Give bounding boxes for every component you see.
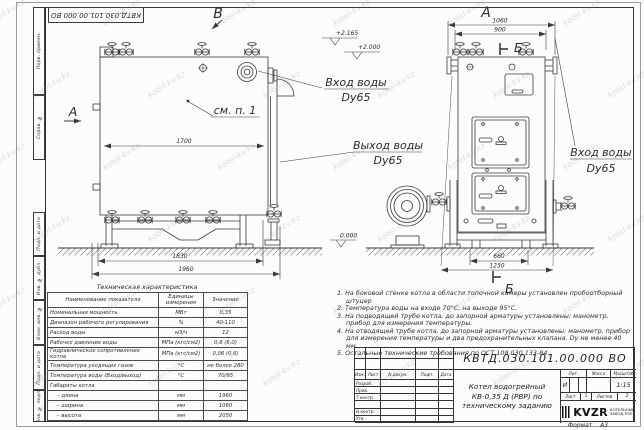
revision-cell xyxy=(381,359,416,370)
spec-value: 0,06 (0,6) xyxy=(204,348,248,361)
spec-value: 40-110 xyxy=(204,318,248,328)
inlet-right-dy: Dy65 xyxy=(587,162,616,175)
boiler-side-view xyxy=(58,43,322,256)
revision-cell xyxy=(366,348,381,359)
spec-name: Диапазон рабочего регулирования xyxy=(48,318,159,328)
spec-unit: % xyxy=(159,318,204,328)
spec-name: Температура уходящих газов xyxy=(48,361,159,371)
dim-660: 660 xyxy=(493,253,505,260)
sig-cell xyxy=(439,416,454,423)
upper-furnace-door xyxy=(472,117,529,168)
title-block-left: Изм. Лист N докум. Подп. Дата Разраб. Пр… xyxy=(355,348,454,423)
scale-value: 1:15 xyxy=(611,378,636,393)
inlet-right-label: Вход воды xyxy=(570,146,632,159)
lit-cell xyxy=(570,378,579,393)
sig-cell xyxy=(439,380,454,387)
note-item: 1. На боковой стенке котла в области топ… xyxy=(337,290,634,305)
title-block-right: Лит. Масса Масштаб И 1:15 Лист 1 Листов … xyxy=(561,370,636,423)
sheets-label: Листов xyxy=(592,393,618,401)
dim-900: 900 xyxy=(494,27,506,34)
spec-unit: МПа (кгс/см2) xyxy=(159,338,204,348)
spec-value: 0,35 xyxy=(204,308,248,318)
spec-table-caption: Техническая характеристика xyxy=(47,283,247,291)
spec-row: Температура уходящих газов°Сне более 280 xyxy=(48,361,248,371)
view-a-label: А xyxy=(480,5,491,21)
spec-row: – высотамм2050 xyxy=(48,411,248,421)
row-prov: Пров. xyxy=(355,387,381,394)
spec-unit: мм xyxy=(159,391,204,401)
title-block: Изм. Лист N докум. Подп. Дата Разраб. Пр… xyxy=(354,347,635,422)
col-doc: N докум. xyxy=(381,370,416,380)
dim-1960: 1960 xyxy=(178,266,193,273)
spec-col-units: Единицы измерения xyxy=(159,293,204,308)
inlet-left-label: Вход воды xyxy=(325,76,387,89)
spec-unit: МВт xyxy=(159,308,204,318)
spec-value: 70/95 xyxy=(204,371,248,381)
spec-unit: °С xyxy=(159,371,204,381)
sig-cell xyxy=(381,401,416,408)
revision-cell xyxy=(355,348,366,359)
row-nkontr: Н.контр. xyxy=(355,409,381,416)
outlet-label: Выход воды xyxy=(353,139,423,152)
spec-unit: мм xyxy=(159,401,204,411)
sig-cell xyxy=(439,394,454,401)
spec-row: – ширинамм1060 xyxy=(48,401,248,411)
elevation-2000: +2.000 xyxy=(358,44,380,51)
row-utv: Утв. xyxy=(355,416,381,423)
lit-header: Лит. xyxy=(561,370,587,378)
spec-unit: мм xyxy=(159,411,204,421)
format-label: Формат xyxy=(568,422,592,429)
drawing-sheet: Перв. примен. Справ. № Подп. и дата Инв.… xyxy=(0,0,644,430)
revision-cell xyxy=(381,348,416,359)
spec-row: Температура воды (Вход/выход)°С70/95 xyxy=(48,371,248,381)
sig-cell xyxy=(416,409,439,416)
revision-cell xyxy=(355,359,366,370)
note-item: 3. На подводящей трубе котла, до запорно… xyxy=(337,313,634,328)
sheet-number: 1 xyxy=(581,393,592,401)
spec-row: Рабочее давление водыМПа (кгс/см2)0,6 (6… xyxy=(48,338,248,348)
col-list: Лист xyxy=(366,370,381,380)
mass-header: Масса xyxy=(587,370,611,378)
top-valve xyxy=(245,43,259,56)
logo-bars-icon xyxy=(562,406,571,418)
top-valve xyxy=(105,43,119,56)
sheet-label: Лист xyxy=(561,393,581,401)
dim-1830: 1830 xyxy=(172,253,187,260)
elevation-2165: +2.165 xyxy=(336,30,358,37)
mass-value xyxy=(587,378,611,393)
sig-cell xyxy=(439,401,454,408)
lower-furnace-door xyxy=(472,173,529,214)
sig-cell xyxy=(381,409,416,416)
sig-cell xyxy=(439,409,454,416)
spec-name: Расход воды xyxy=(48,328,159,338)
sig-cell xyxy=(439,387,454,394)
spec-row: Гидравлическое сопротивление котлаМПа (к… xyxy=(48,348,248,361)
revision-cell xyxy=(416,359,439,370)
spec-name: Рабочее давление воды xyxy=(48,338,159,348)
inlet-left-dy: Dy65 xyxy=(342,91,371,104)
spec-name: – длина xyxy=(48,391,159,401)
spec-value: не более 280 xyxy=(204,361,248,371)
sig-cell xyxy=(381,387,416,394)
spec-value: 0,6 (6,0) xyxy=(204,338,248,348)
row-blank xyxy=(355,401,381,408)
section-a-marker: А xyxy=(68,104,78,119)
logo-text: KVZR xyxy=(573,406,608,419)
product-title: Котел водогрейный КВ-0,35 Д (РВР) по тех… xyxy=(454,370,561,423)
spec-name: – высота xyxy=(48,411,159,421)
spec-name: Гидравлическое сопротивление котла xyxy=(48,348,159,361)
spec-col-value: Значение xyxy=(204,293,248,308)
outlet-dy: Dy65 xyxy=(374,154,403,167)
col-izm: Изм. xyxy=(355,370,366,380)
dim-1060: 1060 xyxy=(492,18,507,25)
section-b-marker-top: Б xyxy=(514,40,523,55)
row-tkontr: Т.контр. xyxy=(355,394,381,401)
top-valve xyxy=(469,43,483,56)
spec-row: Расход водым3/ч12 xyxy=(48,328,248,338)
spec-value: 12 xyxy=(204,328,248,338)
sig-cell xyxy=(416,380,439,387)
view-b-label: В xyxy=(213,6,223,22)
lit-cell xyxy=(579,378,587,393)
side-view-dimensions xyxy=(64,20,632,279)
logo-subtext-line2: ЗАВОД РЭП xyxy=(610,411,633,416)
manufacturer-logo: KVZR КОТЕЛЬНЫЙ ЗАВОД РЭП xyxy=(561,401,636,423)
format-value: А3 xyxy=(600,422,608,429)
dim-1230: 1230 xyxy=(489,263,504,270)
sig-cell xyxy=(416,394,439,401)
row-razrab: Разраб. xyxy=(355,380,381,387)
spec-col-name: Наименование показателя xyxy=(48,293,159,308)
inlet-valve xyxy=(561,197,575,210)
spec-name: Габариты котла xyxy=(48,381,159,391)
sig-cell xyxy=(416,416,439,423)
revision-cell xyxy=(366,359,381,370)
spec-value xyxy=(204,381,248,391)
sig-cell xyxy=(416,401,439,408)
top-valve xyxy=(119,43,133,56)
spec-unit: МПа (кгс/см2) xyxy=(159,348,204,361)
spec-table: Наименование показателя Единицы измерени… xyxy=(47,292,248,421)
fan-blower xyxy=(387,186,450,248)
lit-value: И xyxy=(561,378,570,393)
format-note: Формат А3 xyxy=(540,422,636,429)
spec-row: Габариты котла xyxy=(48,381,248,391)
see-note-callout: см. п. 1 xyxy=(214,104,257,117)
logo-subtext: КОТЕЛЬНЫЙ ЗАВОД РЭП xyxy=(610,408,635,417)
dim-1700: 1700 xyxy=(176,138,191,145)
spec-header-row: Наименование показателя Единицы измерени… xyxy=(48,293,248,308)
revision-cell xyxy=(439,359,454,370)
drain-valve xyxy=(267,205,281,218)
sig-cell xyxy=(381,416,416,423)
sheets-total: 2 xyxy=(618,393,636,401)
sig-cell xyxy=(416,387,439,394)
revision-cell xyxy=(439,348,454,359)
spec-row: – длинамм1960 xyxy=(48,391,248,401)
spec-value: 2050 xyxy=(204,411,248,421)
spec-unit xyxy=(159,381,204,391)
spec-value: 1060 xyxy=(204,401,248,411)
col-sign: Подп. xyxy=(416,370,439,380)
elevation-zero: 0.000 xyxy=(340,233,357,240)
fan-valve xyxy=(432,193,446,206)
sig-cell xyxy=(381,380,416,387)
spec-unit: м3/ч xyxy=(159,328,204,338)
scale-header: Масштаб xyxy=(611,370,636,378)
revision-cell xyxy=(416,348,439,359)
sig-cell xyxy=(381,394,416,401)
spec-name: – ширина xyxy=(48,401,159,411)
spec-row: Диапазон рабочего регулирования%40-110 xyxy=(48,318,248,328)
spec-value: 1960 xyxy=(204,391,248,401)
doc-number: КВТД.030.101.00.000 ВО xyxy=(454,348,636,370)
spec-unit: °С xyxy=(159,361,204,371)
spec-name: Температура воды (Вход/выход) xyxy=(48,371,159,381)
spec-row: Номинальная мощностьМВт0,35 xyxy=(48,308,248,318)
top-valve xyxy=(195,43,209,56)
col-date: Дата xyxy=(439,370,454,380)
spec-name: Номинальная мощность xyxy=(48,308,159,318)
